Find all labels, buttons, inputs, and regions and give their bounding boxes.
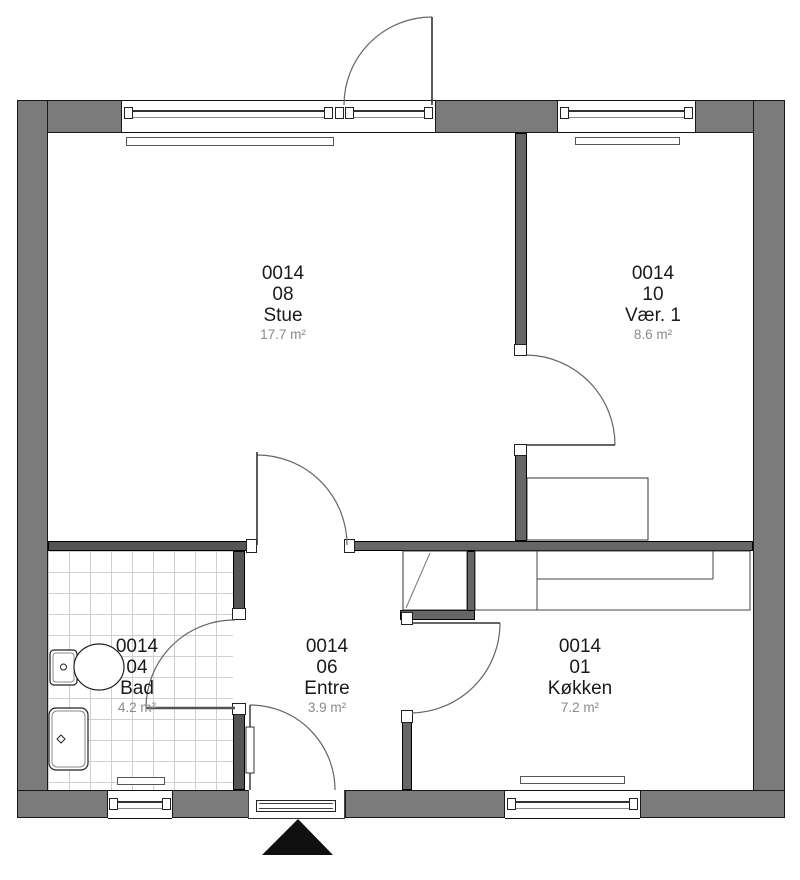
duct-shaft [403, 551, 467, 610]
plan-linework [0, 0, 800, 880]
room-unit: 0014 [304, 636, 349, 657]
room-label-koekken: 0014 01 Køkken 7.2 m² [548, 636, 612, 716]
room-label-entre: 0014 06 Entre 3.9 m² [304, 636, 349, 716]
room-label-vaer1: 0014 10 Vær. 1 8.6 m² [625, 263, 681, 343]
entrance-door [246, 705, 335, 790]
room-name: Vær. 1 [625, 305, 681, 326]
room-area: 17.7 m² [260, 326, 306, 343]
room-name: Stue [260, 305, 306, 326]
room-unit: 0014 [116, 636, 158, 657]
room-name: Bad [116, 678, 158, 699]
room-name: Køkken [548, 678, 612, 699]
shower-tray [49, 708, 88, 770]
wardrobe [527, 478, 648, 540]
entrance-marker [262, 819, 333, 855]
room-unit: 0014 [260, 263, 306, 284]
room-label-stue: 0014 08 Stue 17.7 m² [260, 263, 306, 343]
room-area: 4.2 m² [116, 699, 158, 716]
koekken-door [412, 623, 500, 713]
toilet [50, 644, 124, 690]
vaer1-door [527, 355, 615, 445]
room-number: 04 [116, 657, 158, 678]
room-number: 08 [260, 284, 306, 305]
room-area: 8.6 m² [625, 326, 681, 343]
stue-entre-door [257, 452, 347, 545]
room-area: 3.9 m² [304, 699, 349, 716]
floor-plan: 0014 08 Stue 17.7 m² 0014 10 Vær. 1 8.6 … [0, 0, 800, 880]
room-number: 06 [304, 657, 349, 678]
room-number: 01 [548, 657, 612, 678]
balcony-door [344, 17, 432, 105]
kitchen-counter [475, 551, 750, 610]
room-number: 10 [625, 284, 681, 305]
room-unit: 0014 [625, 263, 681, 284]
room-label-bad: 0014 04 Bad 4.2 m² [116, 636, 158, 716]
room-unit: 0014 [548, 636, 612, 657]
room-area: 7.2 m² [548, 699, 612, 716]
bad-door [146, 620, 235, 708]
room-name: Entre [304, 678, 349, 699]
